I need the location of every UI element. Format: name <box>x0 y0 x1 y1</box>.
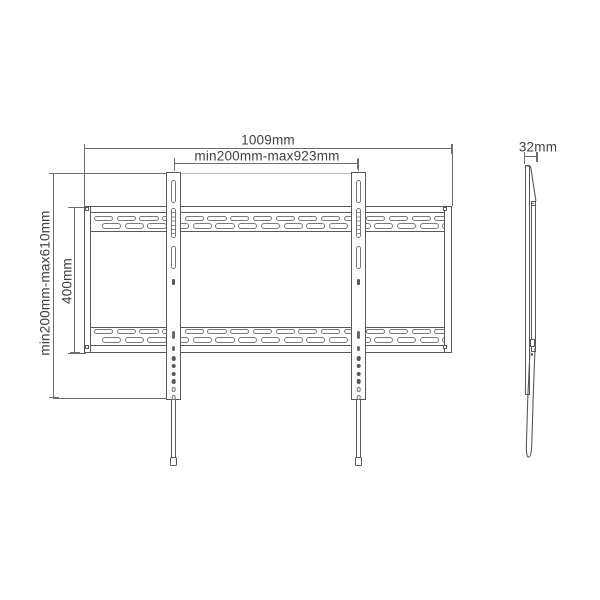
rail-slot <box>434 216 445 222</box>
overall-width-ext-right <box>452 144 453 206</box>
rail-slot <box>434 329 445 335</box>
rail-slot <box>230 216 249 222</box>
plate-screw-top-right <box>443 207 447 211</box>
rail-slot <box>321 329 340 335</box>
mount-height-range-label: min200mm-max610mm <box>39 210 52 355</box>
rail-slot <box>374 223 393 229</box>
arm-rail-mark <box>172 331 175 339</box>
arm-keyhole <box>172 279 175 285</box>
top-rail <box>90 212 445 232</box>
rail-slot <box>215 337 234 343</box>
rail-slot <box>298 329 317 335</box>
rail-slot <box>185 329 204 335</box>
arm-slot <box>356 246 361 269</box>
rail-slot <box>329 223 348 229</box>
profile-depth-ext-left <box>524 152 525 164</box>
mount-width-dim-line <box>174 163 358 164</box>
rail-slot <box>374 337 393 343</box>
rail-slot <box>147 337 166 343</box>
rail-slot <box>366 216 385 222</box>
side-wall-plate-profile <box>525 165 530 395</box>
profile-depth-ext-right <box>537 152 538 162</box>
plate-height-label: 400mm <box>61 258 74 304</box>
rail-slot <box>253 329 272 335</box>
arm-hole-column <box>171 356 176 400</box>
arm-rail-mark <box>172 346 175 352</box>
rail-slot <box>238 223 257 229</box>
arm-hole-filled <box>171 379 176 384</box>
bottom-rail-slot-row-2 <box>102 337 445 343</box>
profile-depth-dim-line <box>524 156 537 157</box>
rail-slot <box>261 337 280 343</box>
arm-hole-open <box>356 387 361 392</box>
plate-height-dim-line <box>74 207 75 353</box>
arm-hole-filled <box>171 356 176 361</box>
arm-leg-right <box>356 399 361 458</box>
bottom-rail <box>90 327 445 346</box>
rail-slot <box>125 337 144 343</box>
rail-slot <box>321 216 340 222</box>
arm-hole-filled <box>171 364 176 369</box>
mount-width-ext-right <box>358 158 359 171</box>
top-rail-slot-row-1 <box>94 216 445 222</box>
side-arm-bottom-spacer <box>530 339 535 347</box>
rail-slot <box>276 329 295 335</box>
mount-height-ext-bottom <box>53 398 171 399</box>
rail-slot <box>102 337 121 343</box>
arm-slot-over-rail <box>356 208 361 238</box>
plate-screw-top-left <box>85 207 89 211</box>
arm-hole-column <box>356 356 361 400</box>
arm-rail-mark <box>357 331 360 339</box>
vesa-arm-left <box>166 172 181 400</box>
arm-hole-open <box>356 395 361 400</box>
rail-slot <box>215 223 234 229</box>
rail-slot <box>253 216 272 222</box>
rail-slot <box>366 329 385 335</box>
rail-slot <box>306 223 325 229</box>
rail-slot <box>412 216 431 222</box>
rail-slot <box>207 216 226 222</box>
arm-hole-filled <box>356 379 361 384</box>
vesa-arm-right <box>351 172 366 400</box>
mount-width-ext-left <box>174 158 175 171</box>
rail-slot <box>230 329 249 335</box>
overall-width-label: 1009mm <box>241 134 295 147</box>
side-arm-bottom-screw <box>531 353 534 356</box>
rail-slot <box>389 329 408 335</box>
arm-leg-left <box>171 399 176 458</box>
rail-slot <box>117 329 136 335</box>
arm-hole-filled <box>356 372 361 377</box>
overall-width-ext-left <box>84 144 85 206</box>
arm-hole-filled <box>356 356 361 361</box>
top-rail-slot-row-2 <box>102 223 445 229</box>
rail-slot <box>193 337 212 343</box>
rail-slot <box>420 337 439 343</box>
mount-height-dim-line <box>53 173 54 398</box>
rail-slot <box>94 329 113 335</box>
rail-slot <box>238 337 257 343</box>
rail-slot <box>306 337 325 343</box>
arm-slot <box>171 180 176 203</box>
arm-slot <box>171 246 176 269</box>
rail-slot <box>185 216 204 222</box>
arm-hole-open <box>171 395 176 400</box>
rail-slot <box>117 216 136 222</box>
wall-mount-dimension-drawing: 1009mm min200mm-max923mm min200mm-max610… <box>0 0 600 600</box>
rail-slot <box>442 223 445 229</box>
rail-slot <box>207 329 226 335</box>
rail-slot <box>412 329 431 335</box>
arm-top-guideline <box>181 173 351 174</box>
arm-leg-left-foot <box>170 457 177 466</box>
plate-screw-bottom-left <box>85 345 89 349</box>
rail-slot <box>193 223 212 229</box>
rail-slot <box>147 223 166 229</box>
plate-height-ext-bottom <box>68 353 86 354</box>
rail-slot <box>442 337 445 343</box>
arm-hole-filled <box>356 364 361 369</box>
side-arm-profile <box>531 201 536 352</box>
rail-slot <box>329 337 348 343</box>
rail-slot <box>284 337 303 343</box>
arm-hole-filled <box>171 372 176 377</box>
rail-slot <box>389 216 408 222</box>
rail-slot <box>139 329 158 335</box>
rail-slot <box>397 337 416 343</box>
bottom-rail-slot-row-1 <box>94 329 445 335</box>
arm-keyhole <box>357 279 360 285</box>
plate-screw-bottom-right <box>443 345 447 349</box>
rail-slot <box>94 216 113 222</box>
arm-leg-right-foot <box>355 457 362 466</box>
rail-slot <box>284 223 303 229</box>
arm-rail-mark <box>357 346 360 352</box>
rail-slot <box>139 216 158 222</box>
rail-slot <box>102 223 121 229</box>
rail-slot <box>420 223 439 229</box>
arm-slot-over-rail <box>171 208 176 238</box>
rail-slot <box>298 216 317 222</box>
mount-height-ext-top <box>53 173 166 174</box>
rail-slot <box>397 223 416 229</box>
arm-hole-open <box>171 387 176 392</box>
arm-slot <box>356 180 361 203</box>
rail-slot <box>261 223 280 229</box>
rail-slot <box>125 223 144 229</box>
rail-slot <box>276 216 295 222</box>
mount-width-range-label: min200mm-max923mm <box>194 150 339 163</box>
